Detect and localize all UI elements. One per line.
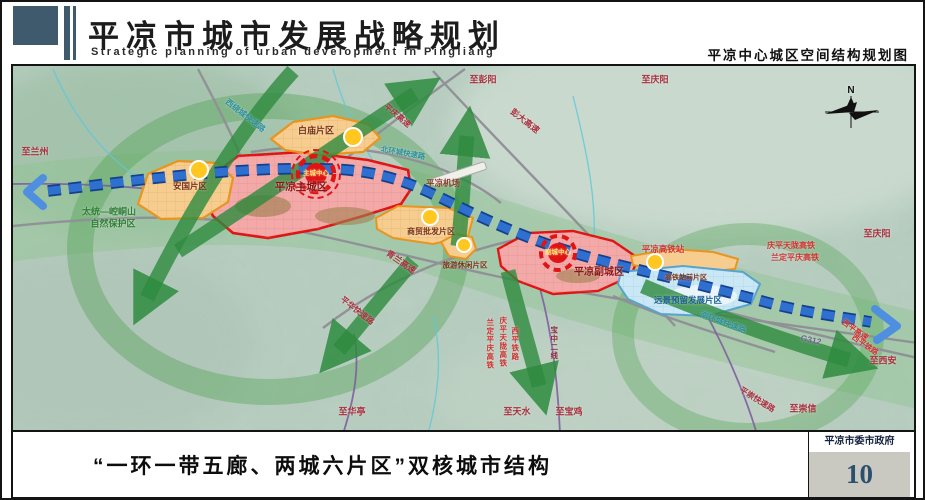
planning-document-page: 平凉市城市发展战略规划 Strategic planning of urban … <box>0 0 925 500</box>
map-graphic <box>13 66 916 432</box>
page-number: 10 <box>809 452 910 497</box>
authority-name: 平凉市委市政府 <box>809 432 910 452</box>
page-header: 平凉市城市发展战略规划 Strategic planning of urban … <box>2 2 923 64</box>
map-title: 平凉中心城区空间结构规划图 <box>708 44 910 64</box>
structure-caption: “一环一带五廊、两城六片区”双核城市结构 <box>93 450 552 480</box>
authority-box: 平凉市委市政府 10 <box>808 432 910 497</box>
planning-map: 至兰州太统—崆峒山自然保护区西绕城快速路白庙片区平庆高速北环城快速路至彭阳彭大高… <box>11 64 916 432</box>
header-logo-square <box>13 6 58 45</box>
document-subtitle-en: Strategic planning of urban development … <box>91 46 495 58</box>
header-accent-bar <box>64 6 70 60</box>
header-accent-bar-thin <box>73 6 76 60</box>
page-footer: “一环一带五廊、两城六片区”双核城市结构 平凉市委市政府 10 <box>11 432 916 499</box>
